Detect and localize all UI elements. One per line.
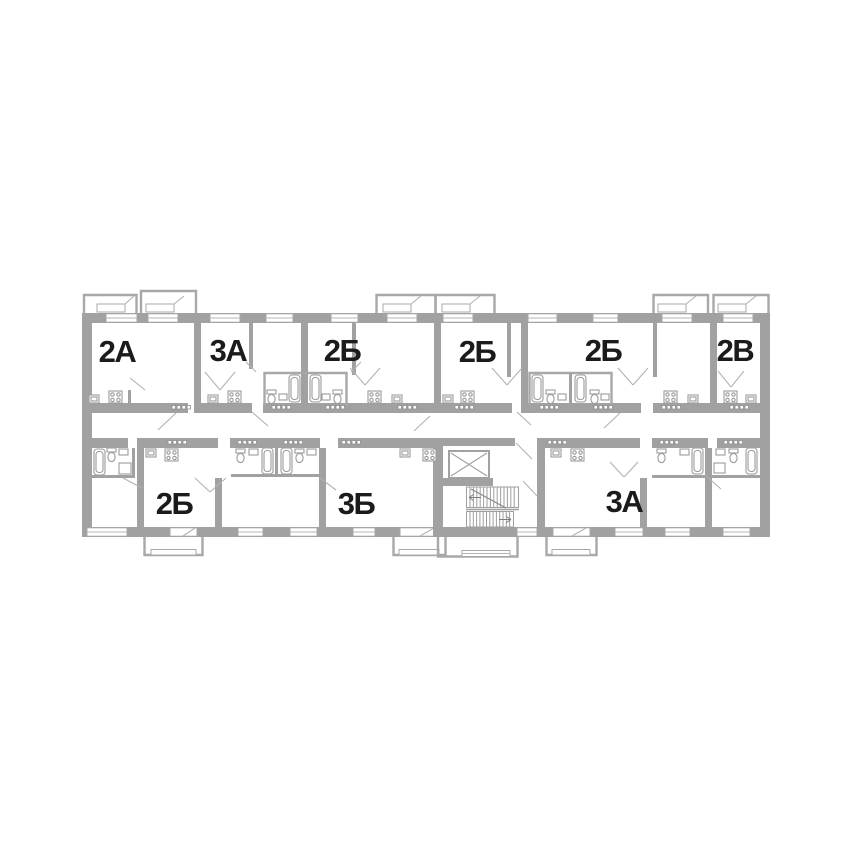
stove-icon (461, 391, 474, 403)
kitchen-sink-icon (208, 395, 218, 403)
apartment-label: 2Б (585, 333, 623, 368)
balcony-walls-bottom (145, 537, 597, 555)
floor-plan-drawing: 2А 3А 2Б 2Б 2Б 2В 2Б 3Б 3А (0, 0, 853, 853)
apartment-label: 3А (210, 333, 248, 368)
stair-direction-arrow (469, 495, 481, 501)
kitchen-sink-icon (746, 395, 756, 403)
stove-icon (664, 391, 677, 403)
kitchen-sink-icon (89, 395, 99, 403)
bathroom-bottom-pair-mid (231, 448, 320, 477)
apartment-label: 2А (99, 334, 137, 369)
kitchen-sink-icon (400, 449, 410, 457)
elevator-shaft (449, 451, 489, 478)
apartment-label: 2В (717, 333, 754, 368)
entrance-porch (438, 537, 518, 557)
kitchen-sink-icon (443, 395, 453, 403)
apartment-label: 2Б (324, 333, 362, 368)
stove-icon (165, 449, 178, 461)
kitchen-fixtures (89, 391, 756, 461)
stove-icon (571, 449, 584, 461)
stove-icon (724, 391, 737, 403)
stove-icon (423, 449, 436, 461)
staircase (466, 487, 519, 527)
kitchen-sink-icon (146, 449, 156, 457)
apartment-label: 2Б (459, 334, 497, 369)
stove-icon (228, 391, 241, 403)
kitchen-sink-icon (688, 395, 698, 403)
apartment-label: 2Б (156, 486, 194, 521)
floor-plan-page: 2А 3А 2Б 2Б 2Б 2В 2Б 3Б 3А (0, 0, 853, 853)
stove-icon (109, 391, 122, 403)
bathroom-bottom-left (92, 448, 135, 478)
apartment-label: 3А (606, 484, 644, 519)
stove-icon (368, 391, 381, 403)
bathroom-top-pair-2 (530, 373, 612, 406)
kitchen-sink-icon (392, 395, 402, 403)
kitchen-sink-icon (551, 449, 561, 457)
apartment-label: 3Б (338, 486, 376, 521)
